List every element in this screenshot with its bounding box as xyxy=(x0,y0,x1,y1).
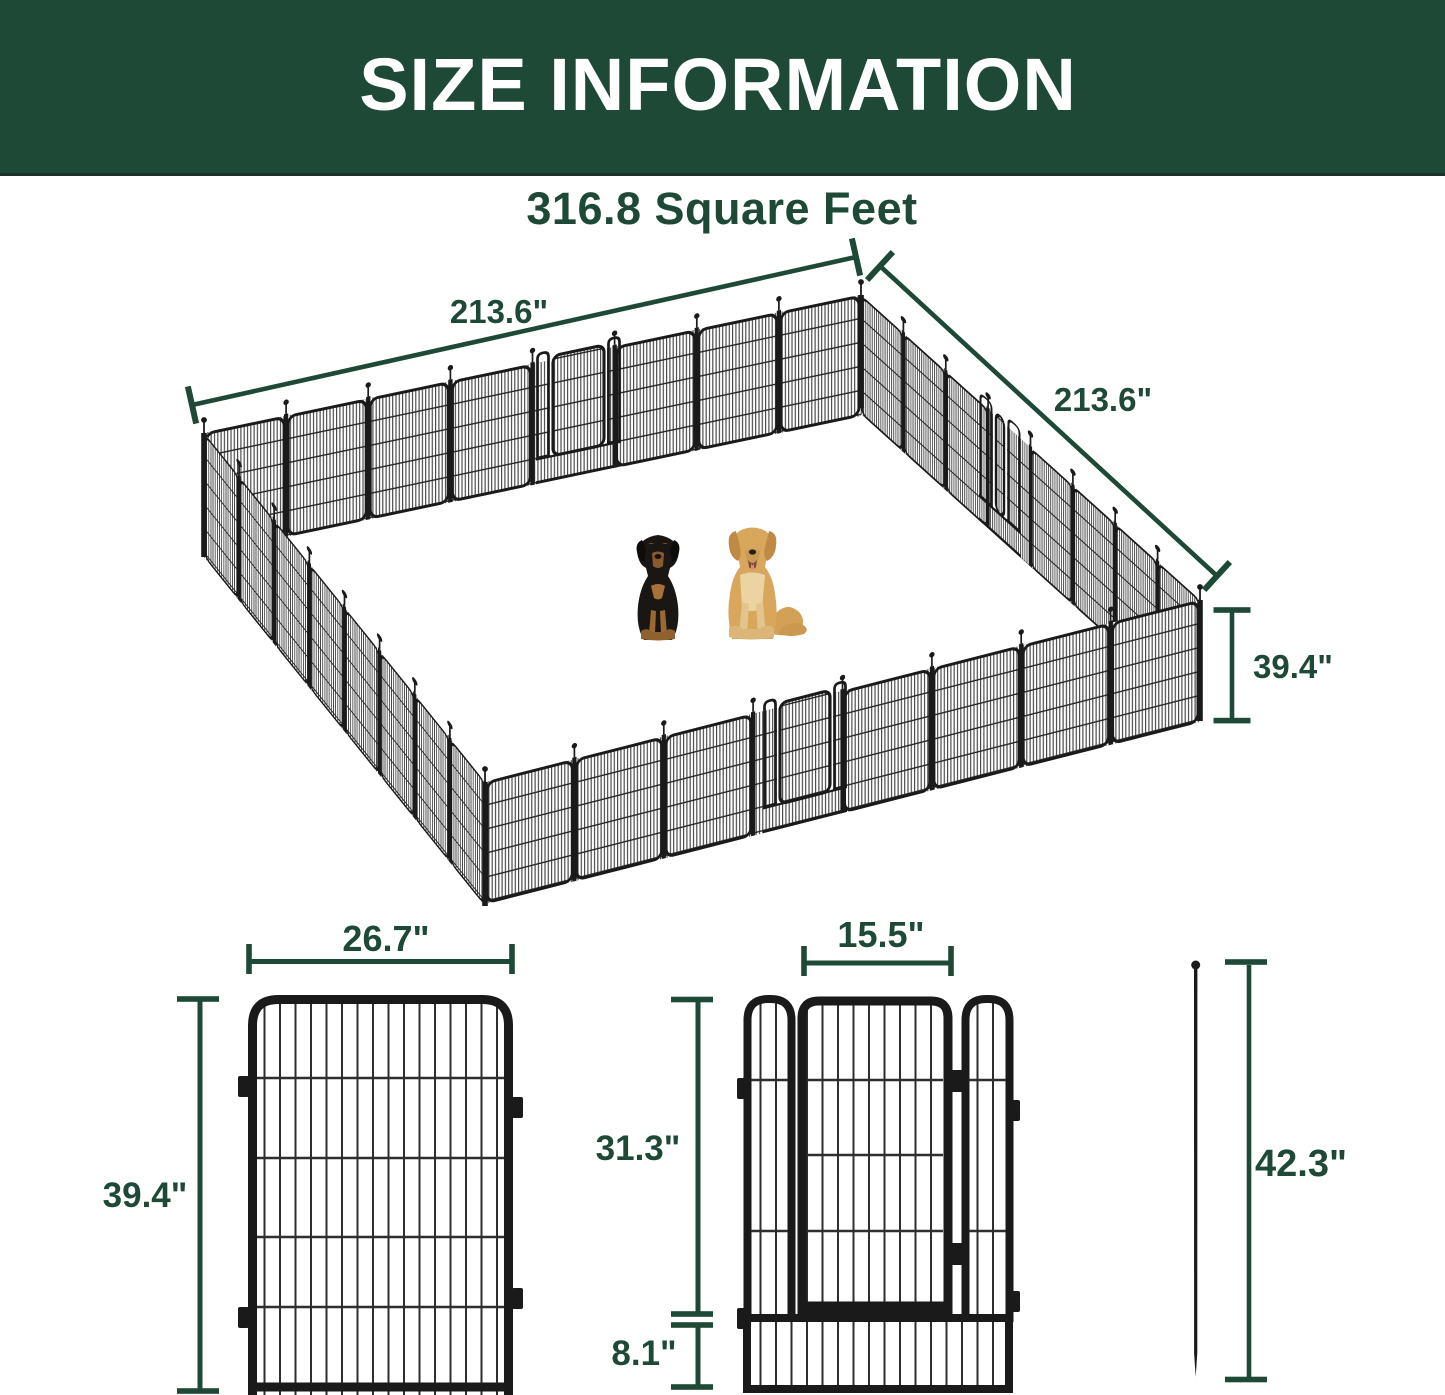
svg-text:26.7": 26.7" xyxy=(342,918,429,959)
svg-text:316.8 Square Feet: 316.8 Square Feet xyxy=(526,183,917,234)
svg-text:15.5": 15.5" xyxy=(837,914,924,955)
svg-text:213.6": 213.6" xyxy=(450,293,548,330)
svg-text:39.4": 39.4" xyxy=(103,1176,188,1215)
svg-text:42.3": 42.3" xyxy=(1255,1143,1347,1185)
svg-text:31.3": 31.3" xyxy=(596,1129,681,1168)
svg-text:8.1": 8.1" xyxy=(611,1334,676,1373)
svg-text:SIZE INFORMATION: SIZE INFORMATION xyxy=(359,43,1077,126)
svg-text:213.6": 213.6" xyxy=(1054,381,1152,418)
svg-text:39.4": 39.4" xyxy=(1253,648,1333,685)
